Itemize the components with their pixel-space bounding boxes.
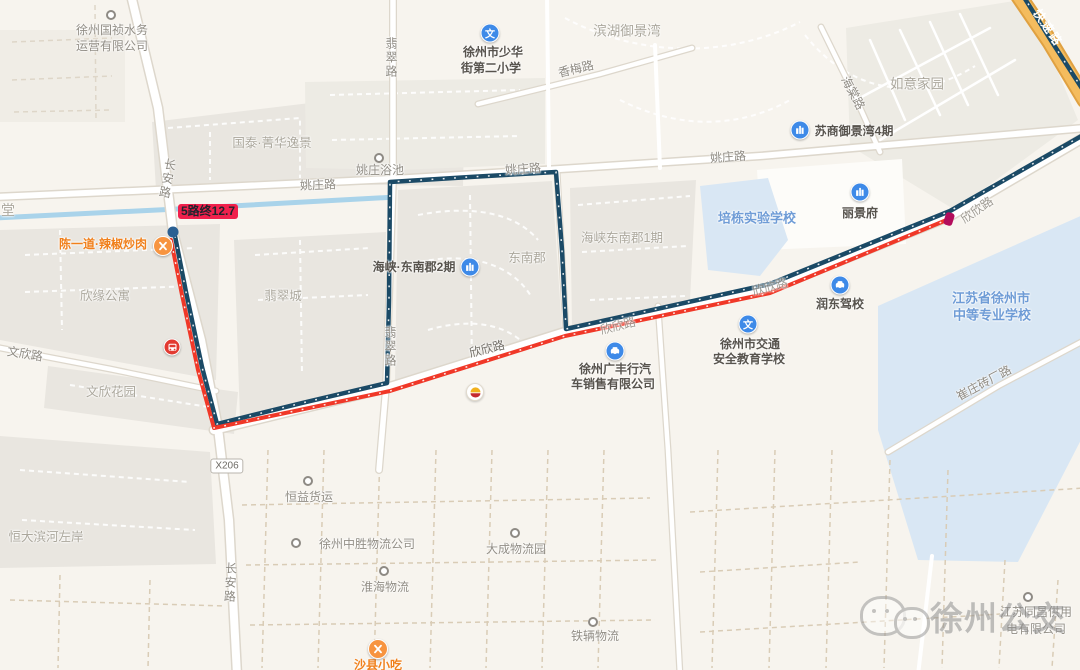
- poi-dot-icon[interactable]: [374, 153, 384, 163]
- car-icon[interactable]: [606, 342, 625, 361]
- restaurant-icon[interactable]: [153, 236, 173, 256]
- poi-label-jiaotong-1[interactable]: 徐州市交通: [720, 338, 780, 350]
- poi-label-chenyidao[interactable]: 陈一道·辣椒炒肉: [59, 238, 147, 250]
- poi-label-guozhen-2[interactable]: 运营有限公司: [76, 40, 148, 52]
- poi-dot-icon[interactable]: [106, 10, 116, 20]
- school-label-zhongzhuan-2[interactable]: 中等专业学校: [953, 309, 1031, 322]
- road-label-feicui-north: 翡翠路: [385, 37, 397, 79]
- area-label-haixia1[interactable]: 海峡东南郡1期: [581, 232, 663, 245]
- area-label-binhu[interactable]: 滨湖御景湾: [593, 24, 661, 38]
- building-icon[interactable]: [461, 258, 480, 277]
- poi-dot-icon[interactable]: [510, 528, 520, 538]
- area-label-ruyijiayuan[interactable]: 如意家园: [890, 77, 944, 91]
- poi-label-guangfeng-1[interactable]: 徐州广丰行汽: [579, 363, 651, 375]
- poi-label-sushang[interactable]: 苏商御景湾4期: [815, 125, 894, 137]
- poi-label-yaozhuang-bath[interactable]: 姚庄浴池: [356, 164, 404, 176]
- school-label-peidong[interactable]: 培栋实验学校: [718, 212, 796, 225]
- road-label-yaozhuang-east: 姚庄路: [710, 150, 747, 164]
- poi-label-jiaotong-2[interactable]: 安全教育学校: [713, 353, 785, 365]
- poi-label-shaxian[interactable]: 沙县小吃: [354, 659, 402, 670]
- area-label-dongnanjun[interactable]: 东南郡: [508, 252, 546, 265]
- poi-label-hengyi[interactable]: 恒益货运: [285, 491, 333, 503]
- area-label-hengda[interactable]: 恒大滨河左岸: [8, 531, 83, 544]
- building-icon[interactable]: [851, 183, 870, 202]
- area-label-wenxinhuayuan[interactable]: 文欣花园: [86, 386, 136, 399]
- road-label-changan-south: 长安路: [223, 562, 237, 605]
- food-bowl-icon[interactable]: [466, 383, 484, 401]
- watermark-text: 徐州公交: [930, 592, 1066, 640]
- poi-label-dacheng[interactable]: 大成物流园: [486, 543, 546, 555]
- area-label-guotai[interactable]: 国泰·菁华逸景: [232, 137, 311, 150]
- building-icon[interactable]: [791, 121, 810, 140]
- restaurant-icon[interactable]: [368, 639, 388, 659]
- poi-label-tieliang[interactable]: 铁辆物流: [571, 630, 619, 642]
- area-label-partial: 堂: [1, 203, 15, 217]
- poi-dot-icon[interactable]: [588, 617, 598, 627]
- poi-label-rundong[interactable]: 润东驾校: [816, 298, 864, 310]
- school-icon[interactable]: 文: [739, 315, 758, 334]
- poi-dot-icon[interactable]: [379, 566, 389, 576]
- poi-label-guangfeng-2[interactable]: 车销售有限公司: [571, 378, 655, 390]
- bus-stop-icon[interactable]: [164, 339, 181, 356]
- area-label-xinyuan[interactable]: 欣缘公寓: [80, 290, 130, 303]
- poi-label-shaohua-2[interactable]: 街第二小学: [461, 62, 521, 74]
- poi-label-lijingfu[interactable]: 丽景府: [842, 207, 878, 219]
- road-label-yaozhuang-west: 姚庄路: [300, 178, 336, 191]
- poi-label-huaihai[interactable]: 淮海物流: [361, 581, 409, 593]
- route-start-marker[interactable]: [168, 227, 179, 238]
- poi-dot-icon[interactable]: [303, 476, 313, 486]
- map-geometry: [0, 0, 1080, 670]
- car-icon[interactable]: [831, 276, 850, 295]
- bus-stop-badge[interactable]: 5路终12.7: [178, 204, 238, 219]
- road-label-yaozhuang-mid: 姚庄路: [505, 162, 542, 176]
- school-label-zhongzhuan-1[interactable]: 江苏省徐州市: [952, 292, 1030, 305]
- area-label-feicuicheng[interactable]: 翡翠城: [264, 290, 302, 303]
- poi-dot-icon[interactable]: [291, 538, 301, 548]
- school-icon[interactable]: 文: [481, 24, 500, 43]
- road-label-feicui-mid: 翡翠路: [384, 326, 396, 368]
- poi-label-zhongsheng[interactable]: 徐州中胜物流公司: [319, 538, 415, 550]
- road-shield-x206: X206: [210, 459, 243, 474]
- watermark: 徐州公交: [860, 592, 1066, 640]
- map-canvas[interactable]: 长安路 长安路 翡翠路 翡翠路 海棠路 姚庄路 姚庄路 姚庄路 香梅路 文欣路 …: [0, 0, 1080, 670]
- poi-label-shaohua-1[interactable]: 徐州市少华: [463, 46, 523, 58]
- poi-label-guozhen-1[interactable]: 徐州国祯水务: [76, 24, 148, 36]
- poi-label-haixia2[interactable]: 海峡·东南郡2期: [373, 261, 456, 273]
- wechat-icon: [894, 607, 930, 639]
